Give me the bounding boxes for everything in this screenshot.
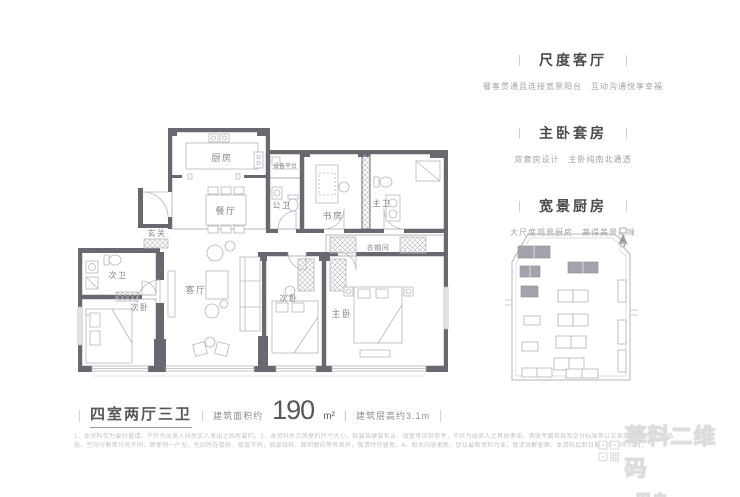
floorplan-sheet: 厨房 设备平台 公卫 书房 主卫 餐厅 玄关 次卫 次卧 客厅 次卧 主卧 衣帽… (0, 0, 740, 497)
room-label-second-bath: 次卫 (109, 270, 128, 280)
room-label-master-bedroom: 主卧 (331, 308, 352, 319)
room-label-public-bath: 公卫 (273, 201, 292, 210)
divider: | (201, 408, 204, 422)
room-label-dining: 餐厅 (215, 205, 236, 216)
area-unit: m² (323, 411, 335, 422)
room-label-kitchen: 厨房 (211, 152, 232, 163)
divider: | (344, 408, 347, 422)
area-value: 190 (272, 395, 314, 426)
room-label-cloakroom: 衣帽间 (367, 243, 390, 252)
feature-title: 宽景厨房 (539, 196, 607, 216)
watermark-user: 用户 owQD9B (635, 487, 737, 497)
divider: | (439, 408, 442, 422)
room-label-master-bath: 主卫 (373, 198, 392, 208)
divider: | (518, 200, 521, 212)
qr-code-icon (597, 439, 620, 463)
disclaimer-line1: 1、本资料仅为要约邀请，不作为出卖人向受买人发出之购房要约。2、本资料所示房屋的… (74, 433, 674, 442)
feature-master-suite: | 主卧套房 | 双套房设计 主卧纯南北通透 (470, 123, 676, 165)
feature-subtitle: 双套房设计 主卧纯南北通透 (470, 154, 676, 165)
divider: | (625, 200, 628, 212)
disclaimer: 1、本资料仅为要约邀请，不作为出卖人向受买人发出之购房要约。2、本资料所示房屋的… (74, 433, 674, 451)
divider: | (625, 127, 628, 139)
room-label-study: 书房 (322, 210, 343, 221)
room-label-foyer: 玄关 (148, 228, 167, 238)
feature-title: 主卧套房 (539, 123, 607, 143)
feature-subtitle: 餐客贯通且连接宽景阳台 互动沟通悦享幸福 (470, 81, 676, 92)
watermark: 草料二维码 用户 owQD9B (597, 419, 737, 497)
floor-height: 建筑层高约3.1m (356, 409, 430, 422)
divider: | (625, 54, 628, 66)
divider: | (78, 408, 81, 422)
floor-plan: 厨房 设备平台 公卫 书房 主卫 餐厅 玄关 次卫 次卧 客厅 次卧 主卧 衣帽… (60, 95, 460, 400)
area-prefix: 建筑面积约 (213, 409, 263, 422)
divider: | (518, 54, 521, 66)
disclaimer-line2: 局、空间分割等均有不同，即使同一户型，也因所在楼栋、楼层不同，局部结构、面积朝向… (74, 442, 674, 451)
room-label-living: 客厅 (185, 284, 206, 295)
feature-title: 尺度客厅 (539, 50, 607, 70)
room-label-bedroom-mid: 次卧 (280, 293, 299, 303)
divider: | (518, 127, 521, 139)
site-buildings-highlighted (518, 246, 598, 297)
site-plan (502, 224, 644, 394)
feature-living: | 尺度客厅 | 餐客贯通且连接宽景阳台 互动沟通悦享幸福 (470, 50, 676, 92)
layout-type: 四室两厅三卫 (90, 403, 192, 428)
watermark-brand: 草料二维码 (624, 419, 737, 483)
plan-summary: | 四室两厅三卫 | 建筑面积约 190 m² | 建筑层高约3.1m | (40, 395, 480, 428)
room-label-equipment: 设备平台 (273, 162, 297, 170)
room-label-bedroom-left: 次卧 (131, 302, 150, 312)
